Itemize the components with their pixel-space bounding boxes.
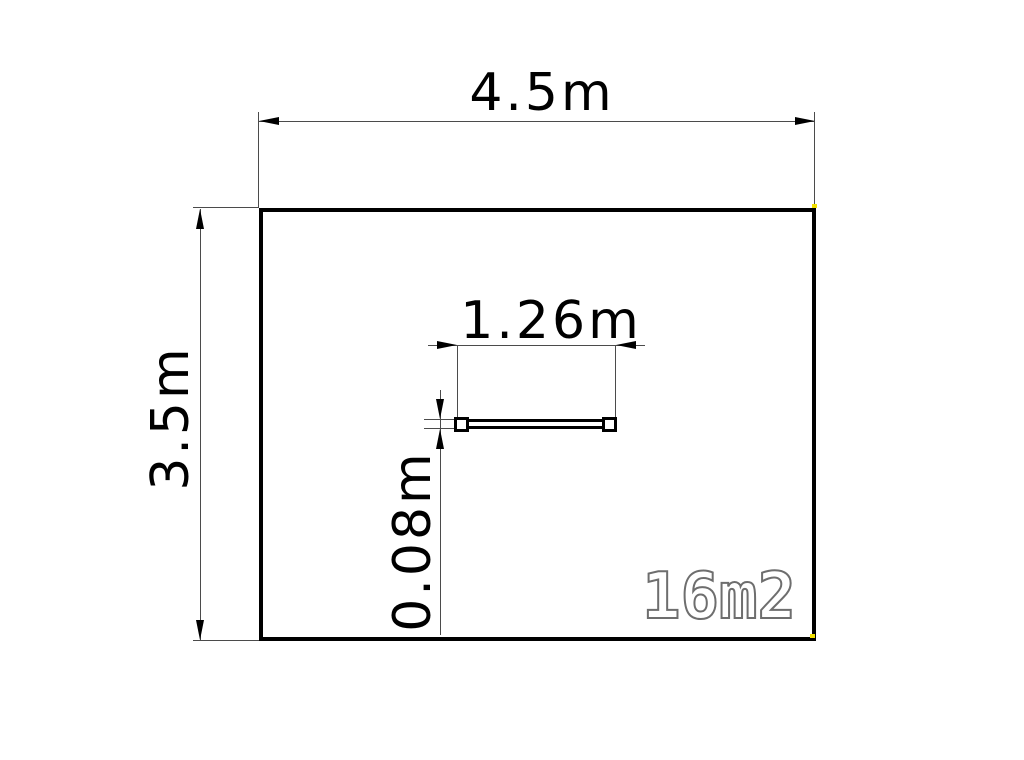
dim-top-extension-left xyxy=(258,112,259,208)
window-end-square-right xyxy=(602,417,617,432)
dim-window-extension-right xyxy=(615,345,616,418)
dim-label-room-width: 4.5m xyxy=(469,64,614,124)
dim-label-window-width: 1.26m xyxy=(460,292,641,352)
arrowhead-inward-right-icon xyxy=(437,341,457,349)
dim-left-extension-bottom xyxy=(193,640,259,641)
grip-point-bottom-right xyxy=(810,634,815,638)
dim-window-extension-left xyxy=(457,345,458,418)
arrowhead-left-icon xyxy=(259,117,279,125)
cad-drawing-canvas: 4.5m 3.5m 1.26m 0.08m 16m2 xyxy=(0,0,1024,760)
window-double-line xyxy=(469,419,603,429)
dim-label-room-height: 3.5m xyxy=(142,345,202,490)
arrowhead-right-icon xyxy=(795,117,815,125)
grip-point-top-right xyxy=(812,204,817,208)
dim-left-extension-top xyxy=(193,207,259,208)
arrowhead-up-icon xyxy=(196,209,204,229)
dim-top-extension-right xyxy=(814,112,815,208)
arrowhead-down-icon xyxy=(196,620,204,640)
window-end-square-left xyxy=(454,417,469,432)
arrowhead-inward-down-icon xyxy=(436,399,444,419)
room-area-label: 16m2 xyxy=(642,560,796,634)
dim-label-window-thickness: 0.08m xyxy=(384,450,444,631)
arrowhead-inward-up-icon xyxy=(436,429,444,449)
